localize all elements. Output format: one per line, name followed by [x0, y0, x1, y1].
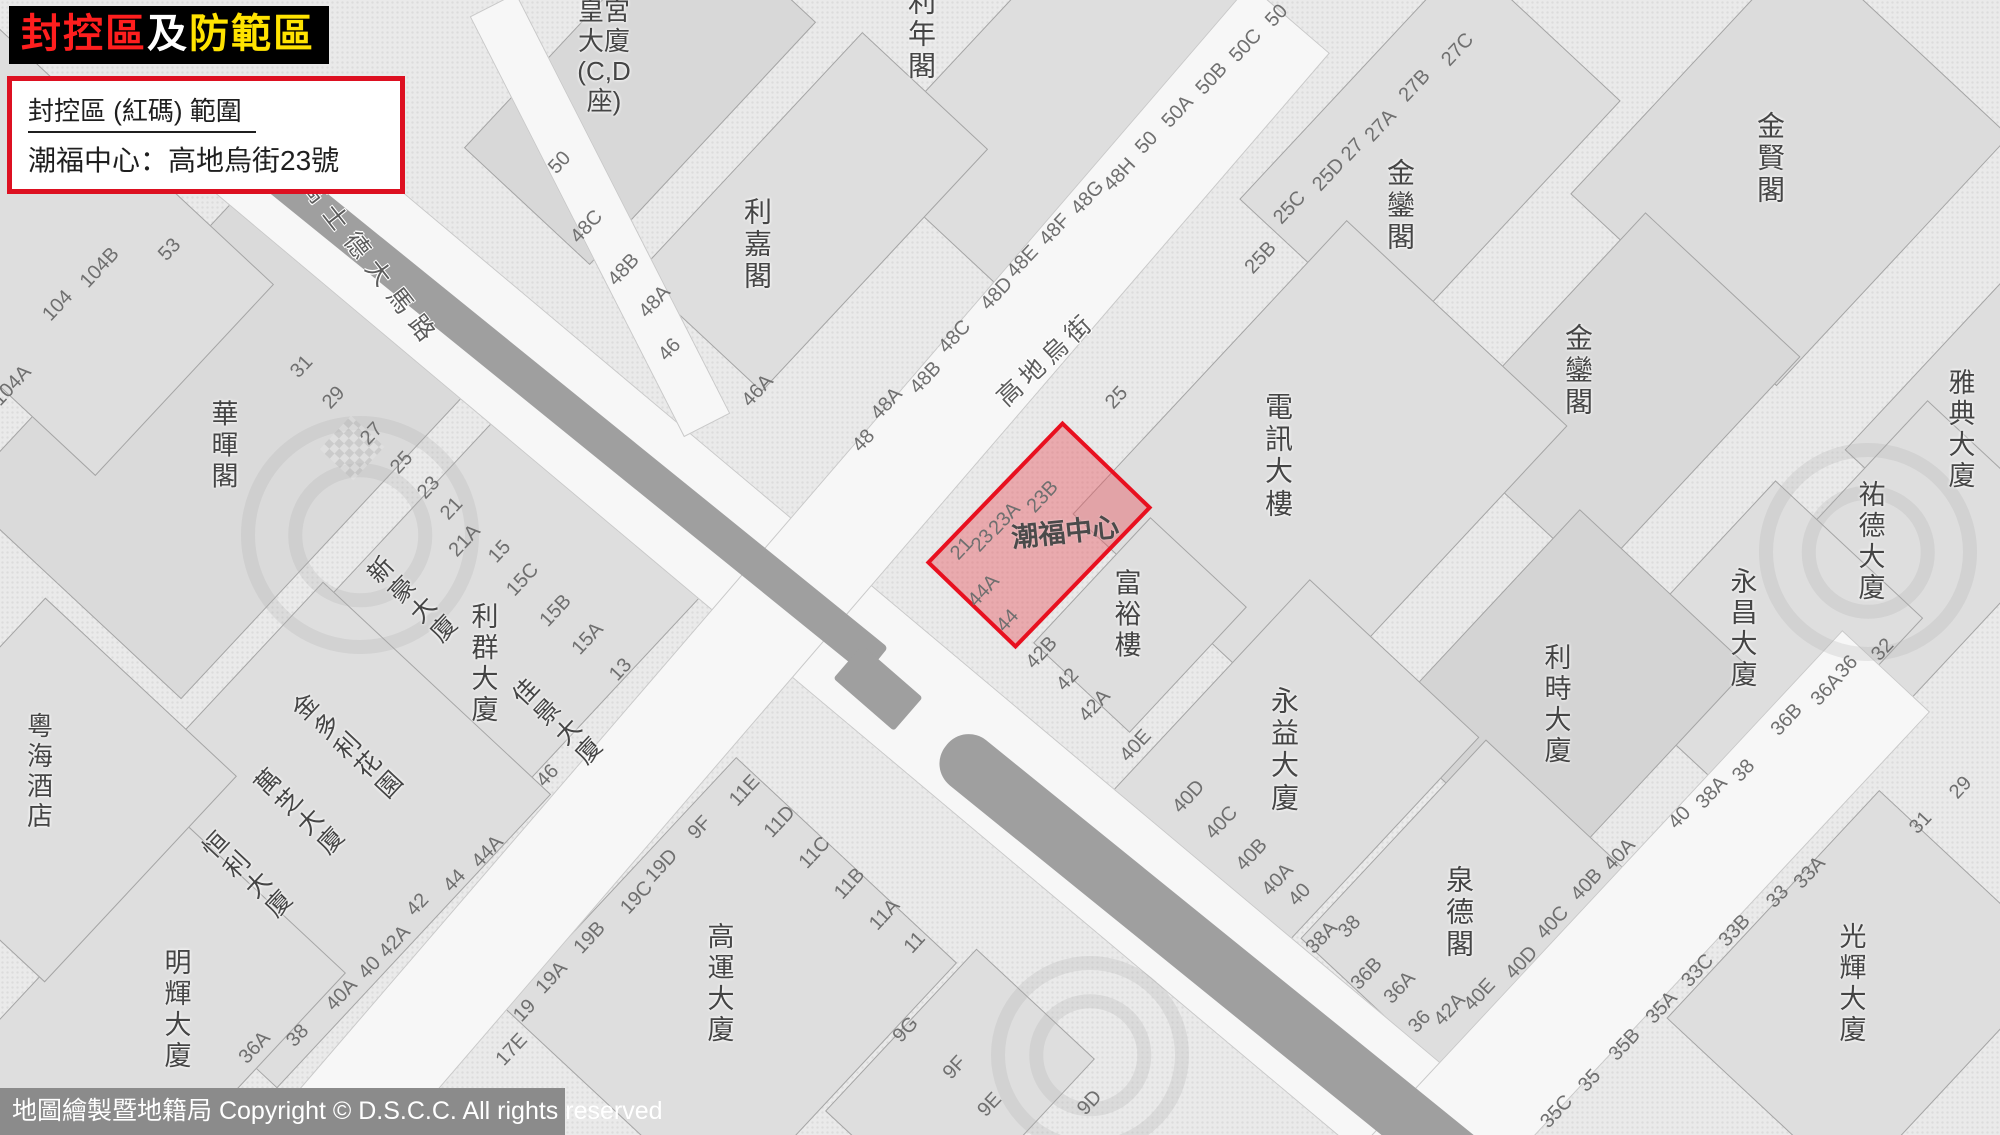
building-label: 明輝大廈	[165, 948, 192, 1072]
zone-banner: 封控區及防範區	[9, 6, 329, 64]
building-label: 泉德閣	[1446, 865, 1474, 962]
zone-info-address: 潮福中心：高地烏街23號	[28, 139, 388, 179]
house-number: 25	[1101, 382, 1133, 414]
building-label: 利嘉閣	[744, 197, 772, 294]
building-label: 皇宮大廈 (C,D座)	[577, 0, 630, 117]
banner-text-and: 及	[147, 12, 189, 56]
building-label: 電訊大樓	[1265, 392, 1293, 521]
building-label: 雅典大廈	[1949, 368, 1976, 492]
banner-text-precaution: 防範區	[189, 12, 315, 56]
house-number: 29	[1945, 772, 1977, 804]
building-label: 永昌大廈	[1731, 567, 1758, 691]
banner-text-lockdown: 封控區	[21, 12, 147, 56]
building-label: 光輝大廈	[1840, 922, 1867, 1046]
building-label: 富裕樓	[1115, 568, 1142, 661]
building-label: 永益大廈	[1271, 686, 1299, 815]
building-label: 利群大廈	[472, 602, 499, 726]
house-number: 25B	[1240, 237, 1281, 279]
building-label: 金賢閣	[1757, 111, 1785, 208]
zone-info-box: 封控區 (紅碼) 範圍 潮福中心：高地烏街23號	[7, 76, 405, 194]
building-label: 金鑾閣	[1387, 158, 1415, 255]
building-label: 祐德大廈	[1859, 480, 1886, 604]
building-label: 高運大廈	[708, 922, 735, 1046]
building-label: 華暉閣	[212, 399, 239, 492]
zone-info-title: 封控區 (紅碼) 範圍	[28, 91, 256, 133]
building-label: 利時大廈	[1545, 643, 1572, 767]
house-number: 17E	[491, 1029, 532, 1071]
building-label: 粵海酒店	[27, 712, 53, 832]
building-label: 利年閣	[908, 0, 936, 83]
copyright-bar: 地圖繪製暨地籍局 Copyright © D.S.C.C. All rights…	[0, 1088, 565, 1135]
building-label: 金鑾閣	[1565, 323, 1593, 420]
map-viewport: 潮福中心 5048C48B48A104B104104A5331292725232…	[0, 0, 2000, 1135]
